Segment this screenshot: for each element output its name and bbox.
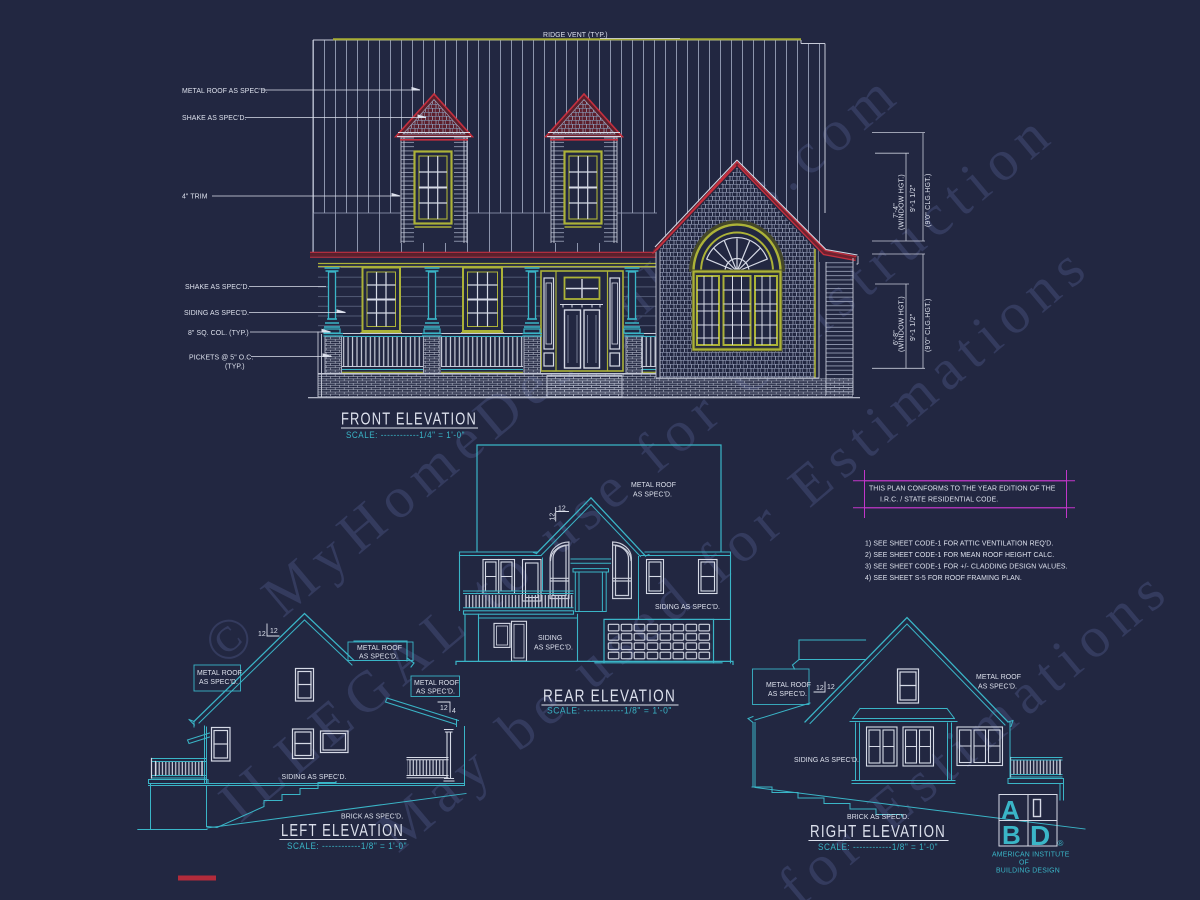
svg-text:SIDING: SIDING xyxy=(538,635,562,642)
svg-text:METAL ROOF AS SPEC'D.: METAL ROOF AS SPEC'D. xyxy=(182,88,268,95)
svg-text:12: 12 xyxy=(440,705,448,712)
svg-text:AS SPEC'D.: AS SPEC'D. xyxy=(978,684,1017,691)
svg-text:(9'0" CLG.HGT.): (9'0" CLG.HGT.) xyxy=(925,299,932,353)
svg-text:SHAKE AS SPEC'D.: SHAKE AS SPEC'D. xyxy=(185,284,250,291)
svg-text:SIDING AS SPEC'D.: SIDING AS SPEC'D. xyxy=(282,774,347,781)
svg-text:METAL ROOF: METAL ROOF xyxy=(631,482,676,489)
svg-text:SIDING AS SPEC'D.: SIDING AS SPEC'D. xyxy=(184,310,249,317)
svg-text:AS SPEC'D.: AS SPEC'D. xyxy=(534,645,573,652)
svg-text:METAL ROOF: METAL ROOF xyxy=(197,670,242,677)
svg-text:12: 12 xyxy=(270,628,278,635)
svg-text:FRONT ELEVATION: FRONT ELEVATION xyxy=(341,409,477,429)
svg-text:OF: OF xyxy=(1019,860,1029,867)
svg-text:I.R.C. / STATE RESIDENTIAL COD: I.R.C. / STATE RESIDENTIAL CODE. xyxy=(880,497,998,504)
svg-text:SCALE: ------------1/4" = 1'-0: SCALE: ------------1/4" = 1'-0" xyxy=(346,430,465,441)
svg-text:METAL ROOF: METAL ROOF xyxy=(414,680,459,687)
svg-text:AS SPEC'D.: AS SPEC'D. xyxy=(416,689,455,696)
svg-text:AS SPEC'D.: AS SPEC'D. xyxy=(359,654,398,661)
svg-text:2) SEE SHEET CODE-1 FOR MEAN: 2) SEE SHEET CODE-1 FOR MEAN ROOF HEIGHT… xyxy=(865,552,1054,559)
svg-text:SCALE: ------------1/8" = 1'-0: SCALE: ------------1/8" = 1'-0" xyxy=(547,706,672,717)
svg-text:12: 12 xyxy=(258,631,266,638)
svg-text:RIGHT ELEVATION: RIGHT ELEVATION xyxy=(810,821,946,841)
svg-text:(WINDOW HGT.): (WINDOW HGT.) xyxy=(899,296,906,352)
svg-text:®: ® xyxy=(1058,839,1064,848)
svg-text:D: D xyxy=(1030,820,1050,851)
svg-text:12: 12 xyxy=(816,685,824,692)
svg-text:LEFT ELEVATION: LEFT ELEVATION xyxy=(281,820,404,840)
svg-text:B: B xyxy=(1002,820,1021,850)
svg-text:REAR ELEVATION: REAR ELEVATION xyxy=(543,686,676,706)
svg-text:METAL ROOF: METAL ROOF xyxy=(976,674,1021,681)
svg-text:AS SPEC'D.: AS SPEC'D. xyxy=(768,691,807,698)
svg-text:THIS PLAN CONFORMS TO THE YEAR: THIS PLAN CONFORMS TO THE YEAR EDITION O… xyxy=(869,486,1056,493)
svg-text:12: 12 xyxy=(827,684,835,691)
svg-text:4: 4 xyxy=(452,708,456,715)
svg-text:SCALE: ------------1/8" = 1'-0: SCALE: ------------1/8" = 1'-0" xyxy=(287,841,407,852)
svg-text:SHAKE AS SPEC'D.: SHAKE AS SPEC'D. xyxy=(182,115,247,122)
svg-text:9'-1 1/2": 9'-1 1/2" xyxy=(910,313,917,341)
svg-text:3) SEE SHEET CODE-1 FOR +/- C: 3) SEE SHEET CODE-1 FOR +/- CLADDING DES… xyxy=(865,564,1068,571)
svg-text:(TYP.): (TYP.) xyxy=(225,364,245,371)
svg-text:1) SEE SHEET CODE-1 FOR ATTIC: 1) SEE SHEET CODE-1 FOR ATTIC VENTILATIO… xyxy=(865,541,1053,548)
svg-text:BRICK AS SPEC'D.: BRICK AS SPEC'D. xyxy=(847,814,909,821)
svg-text:SIDING AS SPEC'D.: SIDING AS SPEC'D. xyxy=(794,757,859,764)
svg-text:4" TRIM: 4" TRIM xyxy=(182,194,208,201)
svg-text:SIDING AS SPEC'D.: SIDING AS SPEC'D. xyxy=(655,604,720,611)
svg-text:12: 12 xyxy=(550,513,557,521)
svg-text:AMERICAN INSTITUTE: AMERICAN INSTITUTE xyxy=(992,852,1070,859)
svg-text:RIDGE VENT (TYP.): RIDGE VENT (TYP.) xyxy=(543,32,608,39)
svg-text:8" SQ. COL. (TYP.): 8" SQ. COL. (TYP.) xyxy=(188,330,249,337)
svg-text:(WINDOW HGT.): (WINDOW HGT.) xyxy=(899,174,906,230)
svg-text:4) SEE SHEET S-5 FOR ROOF FRA: 4) SEE SHEET S-5 FOR ROOF FRAMING PLAN. xyxy=(865,575,1022,582)
svg-text:SCALE: ------------1/8" = 1'-0: SCALE: ------------1/8" = 1'-0" xyxy=(818,842,938,853)
svg-text:METAL ROOF: METAL ROOF xyxy=(766,682,811,689)
svg-text:AS SPEC'D.: AS SPEC'D. xyxy=(199,679,238,686)
svg-text:12: 12 xyxy=(558,506,566,513)
svg-text:BUILDING DESIGN: BUILDING DESIGN xyxy=(996,868,1060,875)
svg-text:PICKETS @ 5" O.C.: PICKETS @ 5" O.C. xyxy=(189,355,253,362)
svg-text:METAL ROOF: METAL ROOF xyxy=(357,645,402,652)
svg-text:(9'0" CLG.HGT.): (9'0" CLG.HGT.) xyxy=(925,174,932,228)
svg-text:9'-1 1/2": 9'-1 1/2" xyxy=(910,184,917,212)
svg-text:AS SPEC'D.: AS SPEC'D. xyxy=(633,492,672,499)
